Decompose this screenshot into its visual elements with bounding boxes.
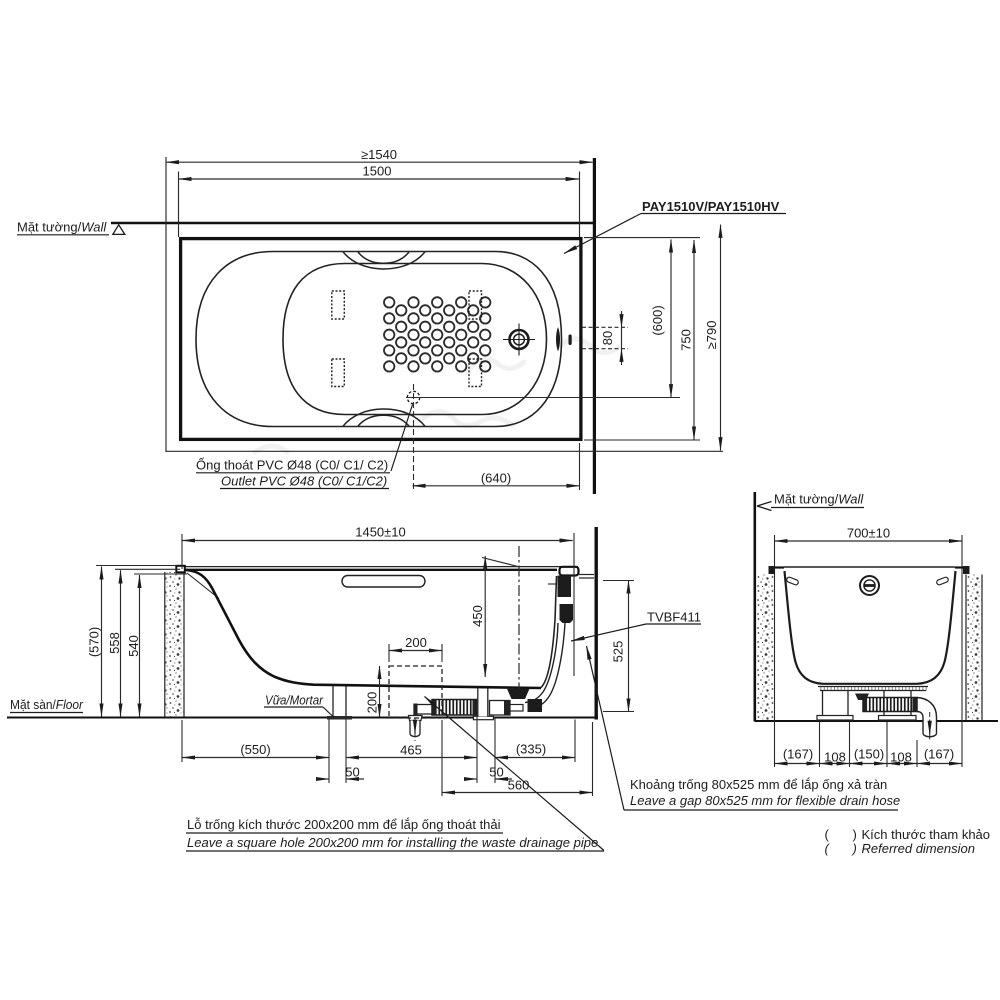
svg-text:700±10: 700±10 bbox=[847, 526, 890, 541]
svg-text:(600): (600) bbox=[650, 305, 665, 335]
svg-text:Leave a square hole 200x200 m: Leave a square hole 200x200 mm for insta… bbox=[187, 835, 598, 850]
svg-text:(335): (335) bbox=[516, 742, 546, 757]
svg-text:(150): (150) bbox=[854, 747, 884, 762]
svg-text:): ) bbox=[853, 827, 857, 842]
svg-text:(167): (167) bbox=[783, 747, 813, 762]
svg-text:PAY1510V/PAY1510HV: PAY1510V/PAY1510HV bbox=[642, 199, 780, 214]
svg-text:Leave a gap 80x525 mm for flex: Leave a gap 80x525 mm for flexible drain… bbox=[630, 793, 900, 808]
svg-text:Mặt sàn/Floor: Mặt sàn/Floor bbox=[10, 697, 84, 712]
svg-text:560: 560 bbox=[508, 778, 530, 793]
svg-text:Khoảng trống 80x525 mm để lắp: Khoảng trống 80x525 mm để lắp ống xả trà… bbox=[630, 777, 887, 792]
svg-text:200: 200 bbox=[365, 692, 380, 714]
svg-text:(167): (167) bbox=[924, 747, 954, 762]
svg-text:Outlet PVC Ø48 (C0/ C1/C2): Outlet PVC Ø48 (C0/ C1/C2) bbox=[221, 474, 387, 489]
svg-text:Mặt tường/Wall: Mặt tường/Wall bbox=[774, 492, 864, 507]
svg-text:1500: 1500 bbox=[363, 164, 392, 179]
svg-text:1450±10: 1450±10 bbox=[355, 525, 406, 540]
svg-text:108: 108 bbox=[890, 750, 912, 765]
svg-text:558: 558 bbox=[107, 632, 122, 654]
svg-text:Vữa/Mortar: Vữa/Mortar bbox=[265, 693, 324, 708]
svg-text:80: 80 bbox=[600, 331, 615, 345]
svg-text:Ống thoát PVC Ø48 (C0/ C1/ C2): Ống thoát PVC Ø48 (C0/ C1/ C2) bbox=[196, 458, 388, 473]
svg-text:Mặt tường/Wall: Mặt tường/Wall bbox=[17, 220, 107, 235]
svg-text:≥790: ≥790 bbox=[704, 321, 719, 350]
svg-text:200: 200 bbox=[405, 635, 427, 650]
svg-text:(640): (640) bbox=[481, 471, 511, 486]
svg-text:(550): (550) bbox=[240, 742, 270, 757]
svg-text:108: 108 bbox=[824, 750, 846, 765]
svg-text:450: 450 bbox=[470, 605, 485, 627]
svg-text:(: ( bbox=[825, 841, 831, 856]
svg-text:465: 465 bbox=[400, 743, 422, 758]
svg-text:50: 50 bbox=[345, 765, 359, 780]
svg-text:): ) bbox=[851, 841, 857, 856]
svg-text:525: 525 bbox=[611, 641, 626, 663]
svg-text:Referred dimension: Referred dimension bbox=[862, 841, 975, 856]
svg-text:(: ( bbox=[825, 827, 830, 842]
svg-text:(570): (570) bbox=[87, 627, 102, 657]
svg-text:50: 50 bbox=[489, 765, 503, 780]
svg-text:Lỗ trống kích thước 200x200 mm: Lỗ trống kích thước 200x200 mm để lắp ốn… bbox=[187, 817, 501, 832]
svg-text:≥1540: ≥1540 bbox=[361, 147, 397, 162]
svg-text:750: 750 bbox=[679, 329, 694, 351]
svg-text:TVBF411: TVBF411 bbox=[647, 610, 701, 625]
svg-text:Kích thước tham khảo: Kích thước tham khảo bbox=[862, 827, 991, 842]
svg-text:540: 540 bbox=[126, 635, 141, 657]
